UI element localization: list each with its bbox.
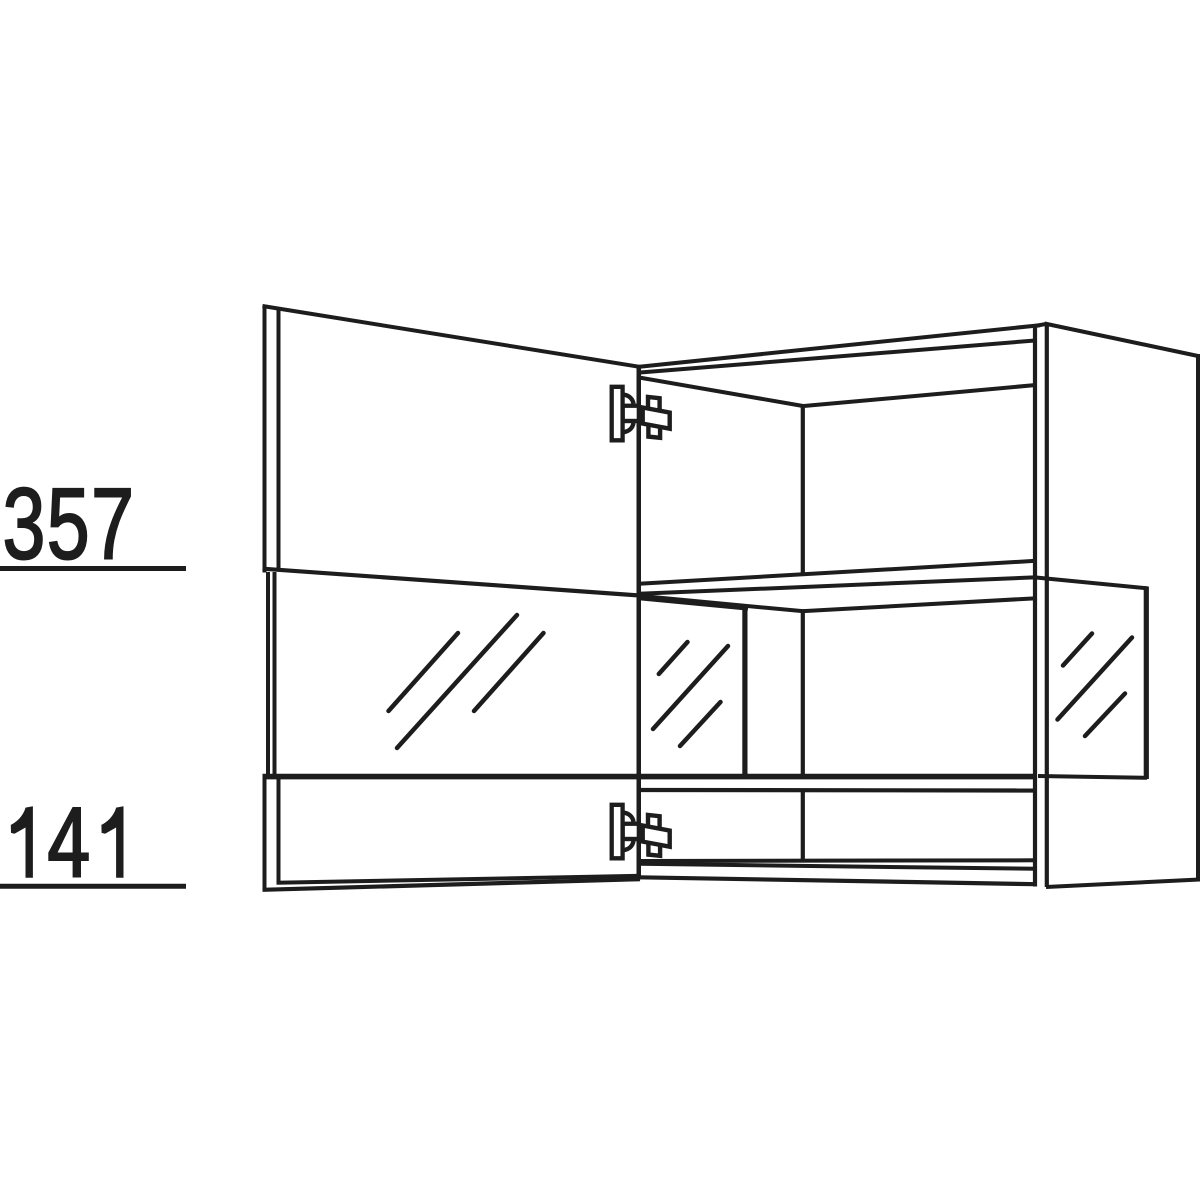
svg-text:357: 357 <box>3 467 134 581</box>
